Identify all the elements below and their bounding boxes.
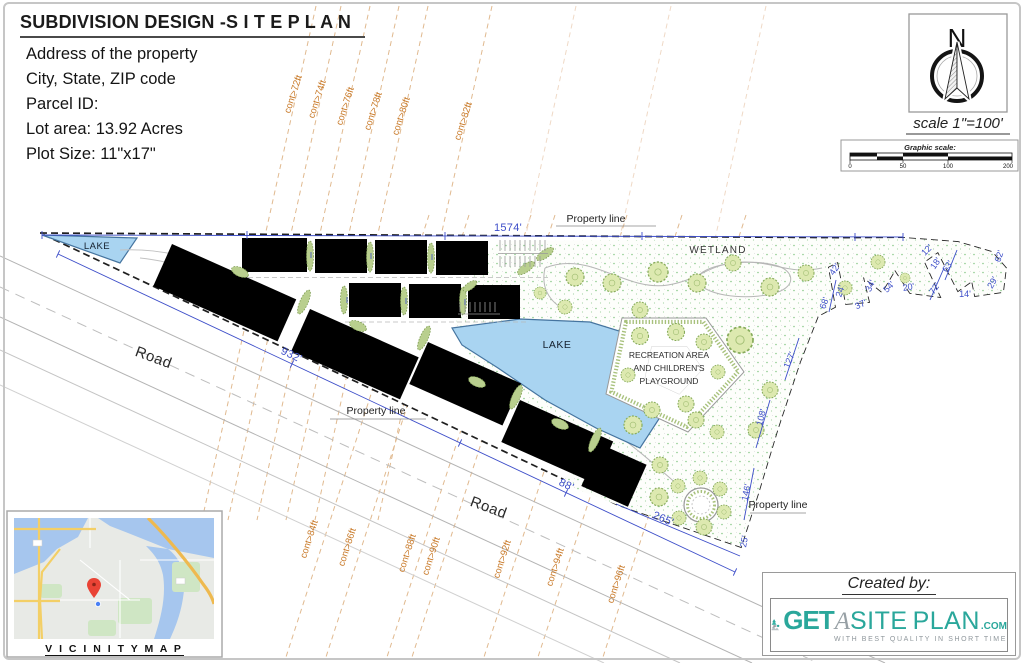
scale-tick: 50 [900, 164, 907, 170]
dimension-label: 1574' [494, 222, 522, 234]
vicinity-map-caption: V I C I N I T Y M A P [45, 643, 183, 655]
contour-label: cont>88ft [396, 532, 419, 573]
scale-tick: 100 [943, 164, 954, 170]
city-line: City, State, ZIP code [20, 68, 365, 92]
created-by-label: Created by: [842, 575, 937, 595]
contour-label: cont>84ft [298, 518, 321, 559]
brand-a: A [835, 609, 850, 634]
recreation-label: PLAYGROUND [640, 376, 699, 386]
recreation-label: RECREATION AREA [629, 350, 709, 360]
property-line-label: Property line [567, 213, 626, 225]
brand-tagline: WITH BEST QUALITY IN SHORT TIME [834, 636, 1007, 643]
brand-get: GET [783, 607, 833, 633]
dimension-label: 25' [738, 535, 750, 549]
plot-size-line: Plot Size: 11"x17" [20, 143, 365, 167]
dimension-label: 62' [993, 249, 1006, 264]
title-block: SUBDIVISION DESIGN -S I T E P L A N Addr… [20, 12, 365, 168]
road-label: Road [133, 343, 174, 372]
contour-label: cont>80ft [390, 95, 413, 136]
dimension-label: 14' [959, 289, 971, 299]
brand-site: SITE [850, 609, 908, 634]
vicinity-map: V I C I N I T Y M A P [7, 511, 222, 657]
address-line: Address of the property [20, 43, 365, 67]
scale-label: scale 1"=100' [913, 115, 1004, 132]
contour-label: cont>94ft [544, 546, 567, 587]
lake-label: LAKE [84, 241, 110, 252]
graphic-scale-label: Graphic scale: [904, 143, 956, 152]
graphic-scale-bar: Graphic scale: 0 50 100 200 [841, 140, 1018, 171]
contour-label: cont>82ft [452, 100, 475, 141]
property-line-label: Property line [749, 499, 808, 511]
logo-icon [771, 604, 780, 646]
lake-label: LAKE [543, 339, 572, 351]
site-plan-sheet: { "title_block": { "title_main": "SUBDIV… [0, 0, 1024, 663]
recreation-label: AND CHILDREN'S [633, 363, 704, 373]
contour-label: cont>78ft [362, 90, 385, 131]
vicinity-map-image [14, 518, 214, 639]
lot-area-line: Lot area: 13.92 Acres [20, 118, 365, 142]
north-arrow-box: N scale 1"=100' [906, 14, 1010, 134]
road-label: Road [468, 493, 509, 522]
brand-logo: GETASITEPLAN.COM WITH BEST QUALITY IN SH… [770, 598, 1008, 652]
contour-label: cont>86ft [336, 526, 359, 567]
scale-tick: 200 [1003, 164, 1014, 170]
wetland-label: WETLAND [689, 245, 746, 256]
created-by-box: Created by: GETASITEPLAN.COM WITH BEST Q… [762, 572, 1016, 656]
brand-plan: PLAN [913, 609, 980, 634]
contour-label: cont>96ft [605, 563, 628, 604]
brand-com: .COM [981, 622, 1007, 632]
page-title: SUBDIVISION DESIGN -S I T E P L A N [20, 12, 365, 38]
parcel-id-line: Parcel ID: [20, 93, 365, 117]
dimension-label: 20' [902, 281, 916, 293]
property-line-label: Property line [347, 405, 406, 417]
